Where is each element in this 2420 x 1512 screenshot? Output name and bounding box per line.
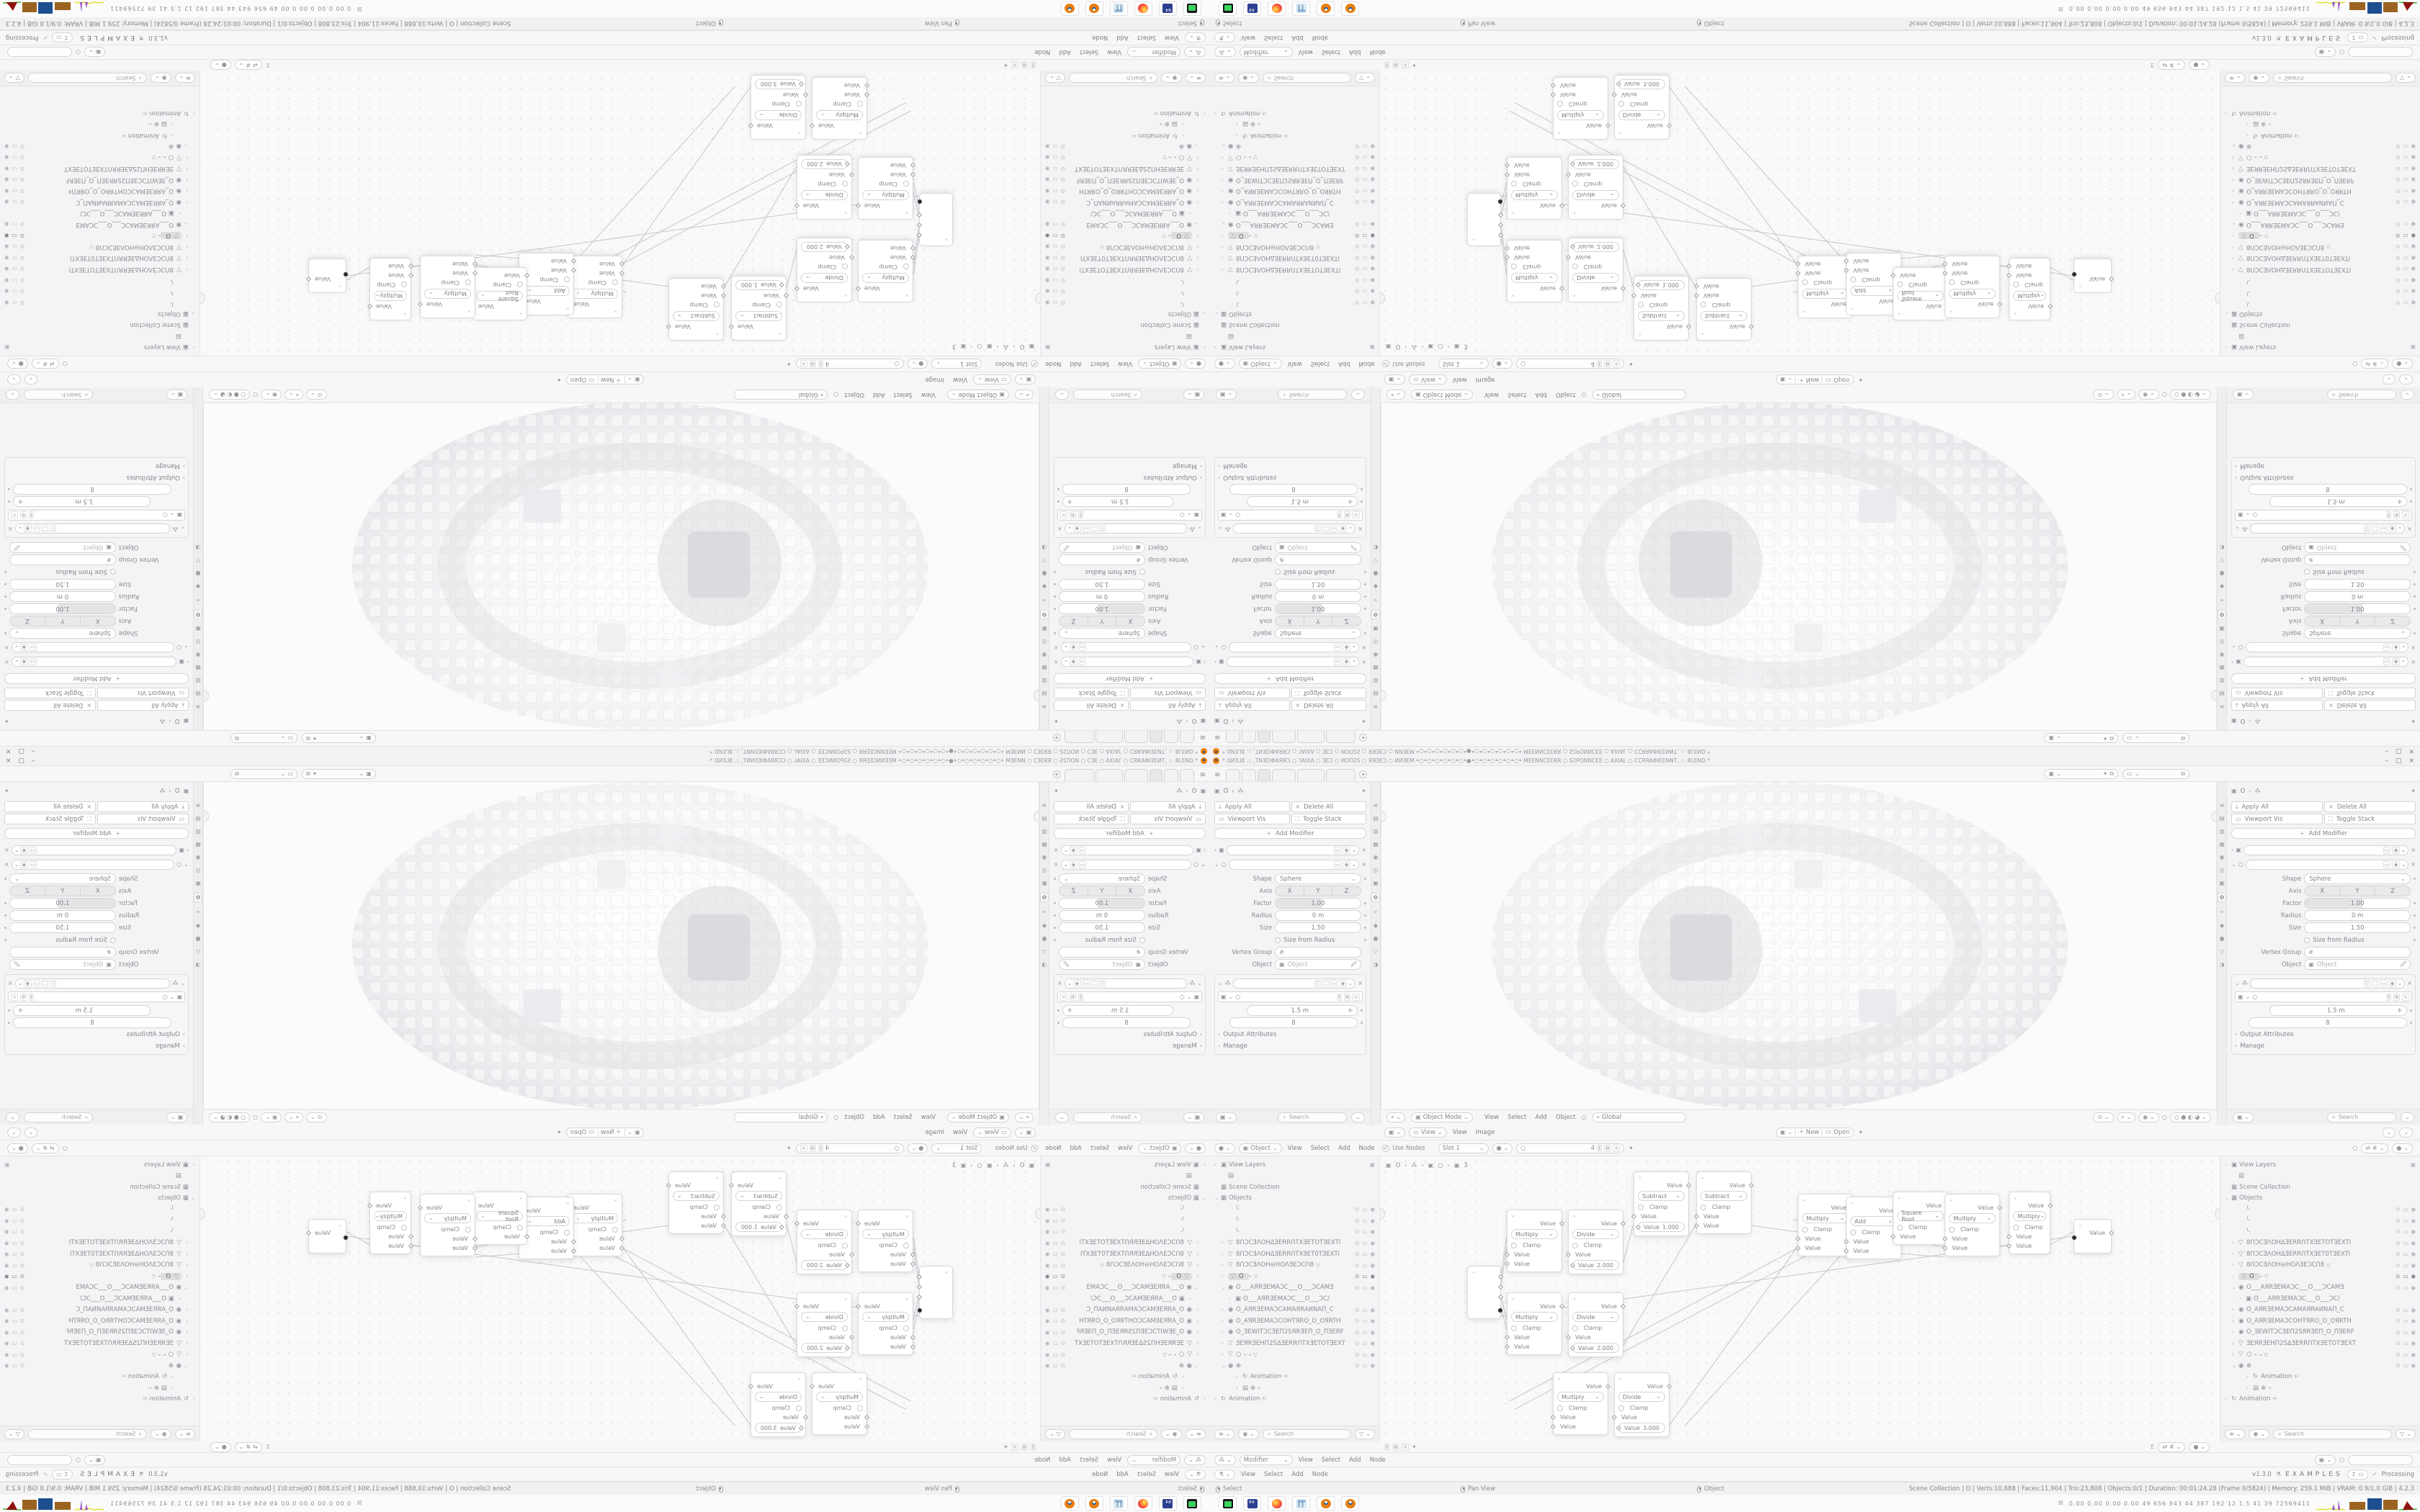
- remove-modifier-button[interactable]: ×: [4, 660, 9, 665]
- geonode-type-selector[interactable]: Modifier⌄: [1240, 48, 1293, 58]
- node-collapse-chevron[interactable]: ⌄: [1554, 1375, 1608, 1382]
- taskbar-app-calc[interactable]: [1292, 1, 1310, 16]
- screen-icon[interactable]: ▭: [12, 176, 17, 183]
- viewport-vis-button[interactable]: ▭Viewport Vis: [97, 814, 189, 824]
- x-icon[interactable]: ×: [1060, 994, 1067, 1001]
- axis-toggle-group[interactable]: XYZ: [2304, 886, 2411, 896]
- chevron-right-icon[interactable]: ›: [1222, 1262, 1228, 1268]
- outliner-item[interactable]: ◉O_AЯRƎEMAƆCAMAЯRAИNAΠ_C: [1084, 199, 1192, 206]
- outliner-item[interactable]: ▦Objects: [1166, 1194, 1199, 1202]
- camera-icon[interactable]: ◉: [1045, 188, 1050, 194]
- node-math-multiply[interactable]: ⌄ValueMultiply⌄ClampValueValue: [2009, 1192, 2051, 1254]
- screen-icon[interactable]: ▭: [12, 1240, 17, 1246]
- visibility-toggles[interactable]: ⊙▭◉: [3, 277, 24, 284]
- shield-icon[interactable]: ⫼: [818, 361, 823, 368]
- operation-dropdown[interactable]: Divide⌄: [801, 190, 848, 200]
- node-math-multiply[interactable]: ⌄ValueMultiply⌄ClampValueValue: [858, 240, 913, 302]
- properties-tab-icon[interactable]: ≡: [196, 703, 201, 710]
- mode-selector[interactable]: ▣Object Mode⌄: [1411, 390, 1473, 400]
- outliner-row[interactable]: ›▣O___AЯRƎEMAƆC___O___ƆC/: [1214, 1293, 1376, 1305]
- clamp-checkbox[interactable]: [842, 1326, 848, 1331]
- screen-icon[interactable]: ▭: [12, 1318, 17, 1324]
- sidebar-flyout-handle[interactable]: [2211, 811, 2217, 822]
- outliner-item[interactable]: ◉O_ƎEWITƆCƎEΠ2SЯRƎEΠ_O_ΠƎERF: [1228, 1328, 1346, 1336]
- image-options-button[interactable]: ⌄: [24, 1128, 38, 1138]
- outliner-search-input[interactable]: ⌕Search: [2273, 1429, 2392, 1439]
- clamp-row[interactable]: Clamp: [732, 1202, 786, 1212]
- xray-toggle[interactable]: ○: [253, 392, 258, 398]
- chevron-right-icon[interactable]: ›: [1192, 177, 1198, 183]
- eye-icon[interactable]: ⊙: [1061, 166, 1065, 172]
- object-picker-field[interactable]: ▣Object🖉: [9, 959, 116, 970]
- chevron-right-icon[interactable]: ›: [2232, 1274, 2238, 1279]
- axis-x-button[interactable]: X: [2305, 886, 2340, 896]
- input-socket[interactable]: [1636, 282, 1641, 287]
- copy-icon[interactable]: ⧉: [306, 771, 310, 777]
- clamp-checkbox[interactable]: [796, 102, 802, 107]
- screen-icon[interactable]: ▭: [2403, 199, 2408, 205]
- outliner-row[interactable]: ▦Scene Collection: [1044, 320, 1206, 331]
- node-math-multiply[interactable]: ⌄ValueMultiply⌄ClampValueValue: [369, 1192, 411, 1254]
- chevron-down-icon[interactable]: ⌄: [1199, 311, 1206, 317]
- camera-icon[interactable]: ◉: [2411, 288, 2416, 294]
- name-field[interactable]: [2348, 1455, 2413, 1465]
- clamp-checkbox[interactable]: [842, 1243, 848, 1248]
- visibility-toggles[interactable]: ⊙▭◉: [1355, 221, 1376, 228]
- clamp-row[interactable]: Clamp: [1634, 1202, 1688, 1212]
- axis-x-button[interactable]: X: [1116, 886, 1144, 896]
- screen-icon[interactable]: ▭: [1362, 166, 1367, 172]
- modifier-slot-cast[interactable]: ⌄ ○ ▭◉⌄ ×: [1214, 642, 1366, 654]
- output-attributes-section[interactable]: ›Output Attributes: [2235, 472, 2412, 483]
- node-math-divide[interactable]: ⌄ValueDivide⌄ClampValueValue2.000: [797, 1292, 852, 1357]
- overlay-button[interactable]: ●⌄: [210, 60, 231, 71]
- expand-icon[interactable]: ⛶: [1091, 980, 1098, 987]
- outliner-row[interactable]: ⌄◉O___AЯRƎEMAƆC___O___ƆCAMƎ⊙▭◉: [1044, 219, 1206, 230]
- outliner-item[interactable]: ▦Objects: [1166, 310, 1199, 318]
- eye-icon[interactable]: ⊙: [20, 255, 24, 261]
- chevron-right-icon[interactable]: ›: [181, 1318, 188, 1324]
- chevron-right-icon[interactable]: ›: [2231, 847, 2233, 853]
- modifier-name-field[interactable]: ▽⛶▭◉⌄: [1065, 978, 1188, 989]
- add-workspace-button[interactable]: +: [1053, 734, 1061, 742]
- toggle-stack-button[interactable]: ⛶Toggle Stack: [1054, 688, 1129, 698]
- taskbar-app-blender[interactable]: [1341, 1, 1359, 16]
- chevron-down-icon[interactable]: ⌄: [1064, 847, 1069, 853]
- material-datablock-selector[interactable]: ○4⫼⧉×: [796, 1143, 904, 1153]
- properties-tab-icon[interactable]: ▤: [2219, 690, 2225, 697]
- outliner-item[interactable]: ◉O_AЯRƎEMAƆCAMAЯRAИNAΠ_C: [73, 1306, 181, 1313]
- remove-modifier-button[interactable]: ×: [1054, 660, 1059, 665]
- camera-icon[interactable]: ◉: [4, 221, 9, 228]
- manage-section[interactable]: ›Manage: [8, 460, 185, 472]
- properties-tab-icon[interactable]: ▦: [1041, 665, 1047, 671]
- node-collapse-chevron[interactable]: ⌄: [1507, 293, 1561, 300]
- visibility-toggles[interactable]: ⊙▭◉: [3, 1307, 24, 1313]
- screen-icon[interactable]: ▭: [2403, 1218, 2408, 1224]
- properties-tab-icon[interactable]: ⌖: [2220, 909, 2224, 916]
- node-collapse-chevron[interactable]: ⌄: [2009, 311, 2050, 318]
- radius-field[interactable]: 0 m: [9, 910, 116, 921]
- shader-type-selector[interactable]: ▣Object⌄: [1239, 1143, 1282, 1153]
- outliner-item[interactable]: ▽8ՈƆCƎΛOHΔƎERRՈTXƎET0TƎEXTI: [68, 1251, 181, 1258]
- outliner-item[interactable]: ◉O_AЯRƎEMAƆCOHTЯRO_O_OЯRTH: [1228, 187, 1343, 194]
- chevron-down-icon[interactable]: ⌄: [1352, 862, 1357, 868]
- pin-icon[interactable]: ✦: [1003, 1444, 1008, 1450]
- chevron-right-icon[interactable]: ›: [1185, 210, 1191, 216]
- chevron-right-icon[interactable]: ›: [2232, 1251, 2238, 1257]
- outliner-row[interactable]: ╰⊙▭◉: [1044, 1215, 1206, 1227]
- shading-mode-buttons[interactable]: ○ ● ◐ ◕⌄: [2170, 1112, 2211, 1122]
- screen-icon[interactable]: ▭: [1053, 143, 1058, 150]
- input-socket[interactable]: [1636, 1225, 1641, 1230]
- value-field[interactable]: Value1.000: [735, 1222, 782, 1232]
- properties-tab-icon[interactable]: ▦: [1373, 665, 1379, 671]
- camera-icon[interactable]: ◉: [2411, 1340, 2416, 1346]
- pin-icon[interactable]: ✦: [2103, 771, 2108, 777]
- toggle-stack-button[interactable]: ⛶Toggle Stack: [1291, 688, 1367, 698]
- outliner-row[interactable]: ›↻Animation⁴²: [1044, 130, 1206, 141]
- chevron-right-icon[interactable]: ›: [1222, 1318, 1228, 1324]
- visibility-toggles[interactable]: ⊙▭◉: [2396, 1206, 2417, 1212]
- chevron-right-icon[interactable]: ›: [181, 255, 188, 261]
- remove-modifier-button[interactable]: ×: [2411, 847, 2416, 853]
- chevron-right-icon[interactable]: ›: [1214, 660, 1216, 665]
- apply-all-button[interactable]: ⤓Apply All: [97, 700, 189, 711]
- filter-button[interactable]: ▽⌄: [1355, 1429, 1375, 1439]
- input-socket[interactable]: [845, 1346, 850, 1351]
- operation-dropdown[interactable]: Divide⌄: [801, 273, 848, 283]
- value-field[interactable]: Value2.000: [1572, 242, 1619, 252]
- clamp-row[interactable]: Clamp: [732, 300, 786, 310]
- node-collapse-chevron[interactable]: ⌄: [309, 284, 346, 290]
- outliner-item[interactable]: ▽ƎEЯRƎEHΠ2SΔƎERRՈTXƎETOTƎEXT: [2238, 1340, 2358, 1347]
- camera-icon[interactable]: ◉: [2411, 166, 2416, 172]
- pin-icon[interactable]: ✦: [1858, 377, 1863, 383]
- chevron-right-icon[interactable]: ›: [181, 155, 188, 161]
- properties-tab-icon[interactable]: ◎: [1042, 867, 1047, 873]
- size-from-radius-checkbox[interactable]: [110, 570, 116, 575]
- modifier-name-field[interactable]: ▭◉⌄: [12, 657, 177, 667]
- taskbar-app-firefox[interactable]: [1268, 1, 1286, 16]
- screen-icon[interactable]: ▭: [1053, 1206, 1058, 1212]
- fake-user-icon[interactable]: ⫼: [2386, 512, 2391, 519]
- value-field[interactable]: Value3.000: [755, 1423, 802, 1433]
- expand-icon[interactable]: ⛶: [2372, 526, 2378, 533]
- operation-dropdown[interactable]: Add⌄: [523, 286, 570, 296]
- output-attributes-section[interactable]: ›Output Attributes: [2235, 1029, 2412, 1040]
- eyedropper-icon[interactable]: 🖉: [1063, 962, 1070, 968]
- image-options-button[interactable]: ⌄: [2399, 1128, 2413, 1138]
- outliner-item[interactable]: ▽8ՈƆCƎΛOH⊖HOΛƎEƆCՈ8: [1228, 1261, 1316, 1269]
- modifier-name-field[interactable]: ▭◉⌄: [1229, 860, 1360, 870]
- camera-icon[interactable]: ◉: [1045, 1318, 1050, 1324]
- chevron-right-icon[interactable]: ›: [181, 1262, 188, 1268]
- apply-all-button[interactable]: ⤓Apply All: [97, 801, 189, 812]
- eye-icon[interactable]: ⊙: [20, 154, 24, 161]
- render-icon[interactable]: ◉: [2392, 659, 2399, 666]
- outliner-item[interactable]: ▤: [1228, 1172, 1236, 1179]
- eye-icon[interactable]: ⊙: [1355, 166, 1359, 172]
- node-collapse-chevron[interactable]: ⌄: [1554, 130, 1608, 137]
- chevron-down-icon[interactable]: ⌄: [2225, 1195, 2231, 1201]
- datablock-button[interactable]: ▣⌄: [84, 48, 105, 58]
- expand-icon[interactable]: ⛶: [1322, 526, 1329, 533]
- input-socket[interactable]: [845, 244, 850, 249]
- chevron-down-icon[interactable]: ⌄: [1192, 143, 1198, 149]
- screen-icon[interactable]: ▭: [1334, 861, 1342, 868]
- chevron-down-icon[interactable]: ⌄: [2235, 981, 2240, 986]
- outliner-item[interactable]: ◉O_AЯRƎEMAƆCAMAЯRAИNAΠ_C: [2238, 199, 2347, 206]
- operation-dropdown[interactable]: Multiply⌄: [1949, 289, 1996, 299]
- outliner-row[interactable]: ▦Scene Collection: [1214, 1182, 1376, 1193]
- workspace-tab[interactable]: [1149, 731, 1162, 743]
- menu-item-select[interactable]: Select: [1264, 1471, 1283, 1478]
- chevron-right-icon[interactable]: ›: [2232, 1318, 2238, 1324]
- screen-icon[interactable]: ▭: [2403, 1362, 2408, 1369]
- screen-icon[interactable]: ▭: [2403, 255, 2408, 261]
- screen-icon[interactable]: ▭: [2403, 221, 2408, 228]
- visibility-toggles[interactable]: ⊙▭◉: [1044, 243, 1065, 250]
- outliner-row[interactable]: ⌄▦Objects: [2225, 308, 2417, 320]
- outliner-row[interactable]: ›▤⊕⌁: [2225, 1382, 2417, 1394]
- object-picker-field[interactable]: ▣Object🖉: [1059, 542, 1145, 553]
- camera-icon[interactable]: ◉: [4, 1262, 9, 1269]
- apply-all-button[interactable]: ⤓Apply All: [1214, 700, 1290, 711]
- node-math-multiply[interactable]: ⌄ValueMultiply⌄ClampValueValue: [1945, 256, 2000, 318]
- screen-icon[interactable]: ▭: [2403, 1206, 2408, 1212]
- camera-icon[interactable]: ◉: [2411, 1307, 2416, 1313]
- output-attributes-section[interactable]: ›Output Attributes: [8, 472, 185, 483]
- outliner-row[interactable]: ›▽O⌁ ▽⊙▭◉: [1214, 1271, 1376, 1282]
- toggle-stack-button[interactable]: ⛶Toggle Stack: [1291, 814, 1367, 824]
- delete-all-button[interactable]: ×Delete All: [4, 700, 96, 711]
- camera-icon[interactable]: ◉: [1045, 176, 1050, 183]
- chevron-right-icon[interactable]: ›: [174, 1296, 181, 1302]
- menu-item-add[interactable]: Add: [1116, 1471, 1128, 1478]
- outliner-item[interactable]: ▤: [2238, 1172, 2246, 1179]
- outliner-row[interactable]: ▤: [1214, 330, 1376, 342]
- camera-icon[interactable]: ◉: [1370, 243, 1375, 250]
- chevron-down-icon[interactable]: ⌄: [181, 143, 188, 149]
- screen-icon[interactable]: ▭: [1053, 1329, 1058, 1336]
- workspace-tab[interactable]: [1164, 731, 1178, 743]
- close-button[interactable]: ×: [2408, 748, 2414, 755]
- properties-tab-icon[interactable]: ▣: [1373, 626, 1379, 632]
- outliner-item[interactable]: ↻Animation: [1242, 1373, 1283, 1380]
- screen-icon[interactable]: ▭: [1083, 526, 1090, 533]
- node-input-count-field[interactable]: 8: [1062, 1017, 1191, 1028]
- visibility-toggles[interactable]: ⊙▭◉: [1044, 277, 1065, 284]
- outliner-row[interactable]: ›▽O⌁ ▽⊙▭◉: [1044, 1271, 1206, 1282]
- chevron-down-icon[interactable]: ⌄: [1348, 526, 1353, 532]
- shape-dropdown[interactable]: Sphere⌄: [2304, 873, 2411, 884]
- chevron-down-icon[interactable]: ⌄: [2232, 1363, 2238, 1369]
- outliner-item[interactable]: ↻Animation: [1221, 109, 1262, 117]
- editor-type-button[interactable]: ▣⌄: [1384, 375, 1405, 385]
- camera-icon[interactable]: ◉: [1045, 1228, 1050, 1235]
- visibility-toggles[interactable]: ⊙▭◉: [1355, 1228, 1376, 1235]
- eye-icon[interactable]: ⊙: [20, 1273, 24, 1279]
- editor-type-button[interactable]: ⚗⌄: [1185, 33, 1206, 43]
- remove-modifier-button[interactable]: ×: [2411, 645, 2416, 651]
- properties-tab-icon[interactable]: ◆: [1373, 583, 1378, 590]
- axis-toggle-group[interactable]: XYZ: [1275, 616, 1361, 626]
- screen-icon[interactable]: ▭: [1362, 1251, 1367, 1257]
- node-group-selector[interactable]: ▣⌄ ○ ⫼⧉×: [2235, 991, 2412, 1002]
- axis-x-button[interactable]: X: [1276, 616, 1304, 626]
- jump-buttons[interactable]: ↥▭: [52, 1470, 73, 1480]
- workspace-tab[interactable]: [1124, 769, 1148, 781]
- axis-y-button[interactable]: Y: [1304, 886, 1333, 896]
- radius-field[interactable]: 0 m: [2304, 591, 2411, 602]
- node-math-multiply[interactable]: ⌄ValueMultiply⌄ClampValueValue: [420, 1194, 475, 1256]
- eye-icon[interactable]: ⊙: [20, 188, 24, 194]
- eye-icon[interactable]: ⊙: [1355, 1240, 1359, 1246]
- clamp-row[interactable]: Clamp: [1507, 1323, 1561, 1333]
- camera-icon[interactable]: ◉: [2411, 1329, 2416, 1336]
- input-socket[interactable]: [1570, 244, 1575, 249]
- chevron-right-icon[interactable]: ›: [1178, 132, 1184, 138]
- chevron-right-icon[interactable]: ›: [2225, 1396, 2231, 1402]
- node-input-count-field[interactable]: 8: [13, 1017, 171, 1028]
- operation-dropdown[interactable]: Multiply⌄: [1802, 289, 1849, 299]
- maximize-button[interactable]: ▢: [19, 757, 25, 765]
- eye-icon[interactable]: ⊙: [2396, 176, 2400, 183]
- outliner-row[interactable]: ›◉O_AЯRƎEMAƆCAMAЯRAИNAΠ_C⊙▭◉: [1214, 197, 1376, 208]
- properties-tab-icon[interactable]: ⚙: [194, 610, 202, 619]
- properties-tab-icon[interactable]: ⌖: [197, 909, 200, 916]
- outliner-item[interactable]: ◉O___AЯRƎEMAƆC___O___ƆCAMƎ: [1228, 1284, 1336, 1291]
- taskbar-app-firefox[interactable]: [1134, 1, 1152, 16]
- clamp-checkbox[interactable]: [612, 1227, 618, 1233]
- visibility-toggles[interactable]: ⊙▭◉: [2396, 166, 2417, 172]
- chevron-down-icon[interactable]: ⌄: [1192, 1363, 1198, 1369]
- x-icon[interactable]: ×: [1402, 62, 1409, 69]
- properties-tab-icon[interactable]: ≡: [1042, 703, 1047, 710]
- menu-item-node[interactable]: Node: [1370, 1457, 1386, 1464]
- clamp-row[interactable]: Clamp: [1554, 99, 1608, 109]
- menu-item-add[interactable]: Add: [1070, 1145, 1081, 1152]
- outliner-item[interactable]: ◉O_AЯRƎEMAƆCAMAЯRAИNAΠ_C: [1228, 199, 1336, 206]
- vertex-group-field[interactable]: #: [9, 554, 116, 565]
- outliner-item[interactable]: ▽8ՈƆCƎΛOH⊖HOΛƎEƆCՈ8: [1104, 1261, 1192, 1269]
- menu-item-view[interactable]: View: [1107, 1457, 1121, 1464]
- chevron-down-icon[interactable]: ⌄: [2401, 660, 2406, 665]
- node-collapse-chevron[interactable]: ⌄: [797, 1295, 851, 1302]
- node-math-subtract[interactable]: ⌄ValueSubtract⌄ClampValueValue: [1696, 278, 1752, 341]
- axis-z-button[interactable]: Z: [10, 886, 45, 896]
- taskbar-app-calc[interactable]: [1110, 1, 1128, 16]
- outliner-row[interactable]: ›▽○⌁ ⌁ ▽⊙▭◉: [1044, 152, 1206, 163]
- node-group-selector[interactable]: ▣⌄ ○ ⫼⧉×: [1218, 510, 1363, 521]
- outliner-row[interactable]: ⌄◉O___AЯRƎEMAƆC___O___ƆCAMƎ⊙▭◉: [1214, 219, 1376, 230]
- eye-icon[interactable]: ⊙: [20, 277, 24, 284]
- visibility-toggles[interactable]: ⊙▭◉: [3, 143, 24, 150]
- pin-icon[interactable]: ✦: [313, 771, 318, 777]
- chevron-right-icon[interactable]: ›: [181, 166, 188, 171]
- menu-item-add[interactable]: Add: [873, 1114, 884, 1121]
- outliner-item[interactable]: ▽8ՈƆCƎΛOHΔƎERRՈTXƎETOTƎEXTI: [2238, 1239, 2353, 1246]
- outliner-row[interactable]: ▤: [1044, 330, 1206, 342]
- outliner-row[interactable]: ╰⊙▭◉: [1214, 286, 1376, 297]
- breadcrumb-object-name[interactable]: O: [1192, 717, 1197, 724]
- screen-icon[interactable]: ▭: [1330, 526, 1338, 533]
- outliner-item[interactable]: ▽8ՈƆCƎΛOHΔƎERRՈTXƎETOTƎEXTI: [1228, 1239, 1343, 1246]
- outliner-search-input[interactable]: ⌕Search: [1069, 1429, 1157, 1439]
- circle-icon[interactable]: ○: [63, 1146, 68, 1151]
- axis-y-button[interactable]: Y: [45, 616, 80, 626]
- chevron-right-icon[interactable]: ›: [1192, 1307, 1198, 1313]
- modifier-name-field[interactable]: ▭◉⌄: [1227, 657, 1360, 667]
- camera-icon[interactable]: ◉: [2411, 176, 2416, 183]
- value-field[interactable]: Value2.000: [801, 242, 848, 252]
- operation-dropdown[interactable]: Multiply⌄: [1511, 1229, 1558, 1239]
- visibility-toggles[interactable]: ⊙▭◉: [2396, 288, 2417, 294]
- menu-icon[interactable]: ≡: [1200, 771, 1206, 779]
- node-math-divide[interactable]: ⌄ValueDivide⌄ClampValueValue3.000: [750, 75, 806, 140]
- filter-button[interactable]: ▽⌄: [4, 73, 24, 84]
- eye-icon[interactable]: ⊙: [1355, 188, 1359, 194]
- outliner-row[interactable]: ›▽8ՈƆCƎΛOHΔƎERRՈTXƎETOTƎEXTI⊙▭◉: [1214, 264, 1376, 275]
- node-math-divide[interactable]: ⌄ValueDivide⌄ClampValueValue3.000: [1614, 1372, 1670, 1437]
- screen-icon[interactable]: ▭: [1362, 1240, 1367, 1246]
- screen-icon[interactable]: ▭: [1053, 176, 1058, 183]
- clamp-checkbox[interactable]: [1572, 1326, 1578, 1331]
- chevron-right-icon[interactable]: ›: [1222, 1240, 1228, 1246]
- outliner-item[interactable]: ▽O: [1228, 1273, 1249, 1280]
- outliner-item[interactable]: ▽8ՈƆCƎΛOH⊖HOΛƎEƆCՈ8: [1104, 243, 1192, 251]
- pin-icon[interactable]: ✦: [1412, 63, 1417, 68]
- visibility-toggles[interactable]: ⊙▭◉: [2396, 1251, 2417, 1257]
- outliner-item[interactable]: ▽O: [2238, 232, 2259, 239]
- clamp-row[interactable]: Clamp: [2009, 1223, 2050, 1232]
- camera-icon[interactable]: ◉: [4, 1273, 9, 1279]
- snap-controls[interactable]: ⊙⌄⌖⌄◉⌄○○ ● ◐ ◕⌄: [2093, 390, 2211, 400]
- shape-dropdown[interactable]: Sphere⌄: [1275, 873, 1361, 884]
- operation-dropdown[interactable]: Add⌄: [523, 1216, 570, 1226]
- clamp-row[interactable]: Clamp: [421, 278, 475, 287]
- modifier-slot-collapsed[interactable]: › ▣ ▭◉⌄ ×: [1214, 656, 1366, 668]
- menu-item-node[interactable]: Node: [1045, 361, 1061, 368]
- editor-type-button[interactable]: ▣⌄: [1384, 1128, 1405, 1138]
- chevron-right-icon[interactable]: ›: [2246, 1385, 2253, 1391]
- eye-icon[interactable]: ⊙: [20, 300, 24, 306]
- outliner-row[interactable]: ▦Scene Collection: [2225, 320, 2417, 331]
- outliner-item[interactable]: ◉O_AЯRƎEMAƆCOHTЯRO_O_OЯRTH: [2238, 187, 2354, 194]
- chevron-right-icon[interactable]: ›: [181, 199, 188, 205]
- menu-item-node[interactable]: Node: [1359, 1145, 1375, 1152]
- eye-icon[interactable]: ⊙: [1061, 1351, 1065, 1358]
- copy-icon[interactable]: ⧉: [2110, 735, 2114, 741]
- screen-icon[interactable]: ▭: [12, 199, 17, 205]
- vertex-group-field[interactable]: #: [1059, 554, 1145, 565]
- outliner-row[interactable]: ▦Scene Collection: [1214, 320, 1376, 331]
- chevron-down-icon[interactable]: ⌄: [2231, 862, 2236, 868]
- operation-dropdown[interactable]: Divide⌄: [1618, 1392, 1665, 1402]
- camera-icon[interactable]: ◉: [1045, 1340, 1050, 1346]
- visibility-toggles[interactable]: ⊙▭◉: [1355, 176, 1376, 183]
- clamp-checkbox[interactable]: [401, 1225, 407, 1230]
- properties-tab-icon[interactable]: ▣: [2219, 626, 2225, 632]
- eye-icon[interactable]: ⊙: [2396, 300, 2400, 306]
- chevron-right-icon[interactable]: ›: [1229, 1296, 1235, 1302]
- eye-icon[interactable]: ⊙: [1355, 255, 1359, 261]
- node-math-multiply[interactable]: ⌄ValueMultiply⌄ClampValueValue: [1507, 1292, 1562, 1355]
- menu-item-select[interactable]: Select: [894, 392, 913, 399]
- remove-modifier-button[interactable]: ×: [1361, 862, 1366, 868]
- chevron-down-icon[interactable]: ⌄: [1348, 981, 1353, 986]
